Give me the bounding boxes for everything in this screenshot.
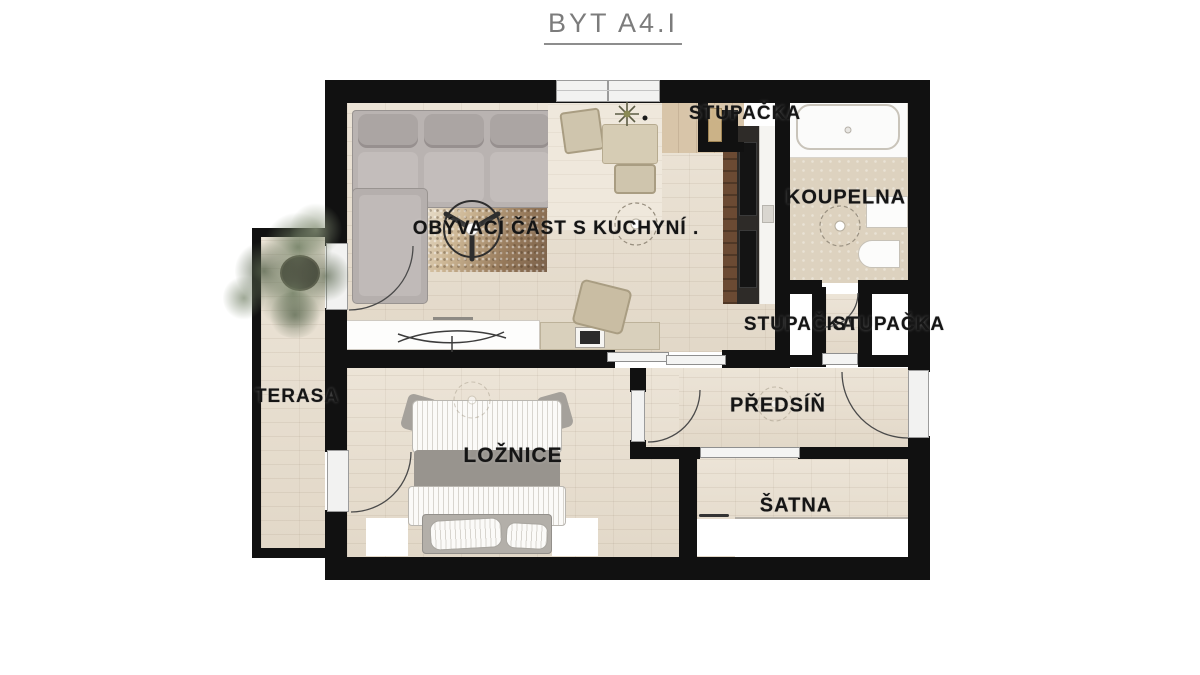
wall-bottom bbox=[325, 557, 930, 580]
room-label-terrace: TERASA bbox=[255, 386, 339, 408]
oven-icon bbox=[739, 230, 757, 288]
sideboard-decor-bar bbox=[433, 317, 473, 320]
entry-door bbox=[908, 370, 929, 438]
terrace-plant bbox=[235, 200, 355, 340]
room-label-bathroom: KOUPELNA bbox=[786, 187, 906, 210]
wall-right bbox=[908, 436, 930, 580]
dining-table bbox=[602, 124, 658, 164]
wall-living-bottom bbox=[347, 350, 615, 368]
wall-bathroom-bottom bbox=[858, 280, 908, 294]
fridge-icon bbox=[739, 142, 757, 216]
wall-left bbox=[325, 510, 347, 580]
window-glass-line bbox=[557, 90, 659, 91]
sofa-seat-cushion bbox=[490, 152, 550, 202]
wall-hall-bottom bbox=[798, 447, 908, 459]
sofa-back-cushion bbox=[424, 114, 484, 148]
window-top bbox=[556, 80, 660, 102]
bedroom-door bbox=[631, 390, 645, 442]
sliding-door-closet bbox=[700, 447, 800, 458]
plant-foliage bbox=[290, 202, 342, 257]
pillow bbox=[429, 517, 502, 551]
plant-foliage bbox=[223, 275, 265, 321]
hanging-rail-icon bbox=[699, 514, 729, 517]
wall-closet-left bbox=[679, 457, 697, 557]
pillow bbox=[505, 522, 548, 550]
toilet bbox=[858, 240, 900, 268]
monitor-screen bbox=[580, 331, 600, 344]
room-label-living: OBÝVACÍ ČÁST S KUCHYNÍ . bbox=[413, 218, 700, 240]
bathtub-inner bbox=[796, 104, 900, 150]
room-label-hall: PŘEDSÍŇ bbox=[730, 395, 826, 418]
sofa-back-cushion bbox=[490, 114, 550, 148]
sink-icon bbox=[762, 205, 774, 223]
room-label-riser-top: STUPAČKA bbox=[689, 103, 801, 125]
room-label-bedroom: LOŽNICE bbox=[463, 444, 562, 468]
terrace-door-bedroom bbox=[327, 450, 349, 512]
bath-passage-threshold bbox=[822, 353, 858, 365]
bedside-mat bbox=[366, 518, 408, 556]
page-title: BYT A4.I bbox=[544, 8, 682, 45]
sliding-door-living-hall bbox=[666, 355, 726, 365]
sideboard bbox=[343, 320, 540, 350]
dining-chair bbox=[614, 164, 656, 194]
dining-chair bbox=[559, 107, 604, 154]
terrace-wall-bottom bbox=[252, 548, 330, 558]
floor-plan: BYT A4.I OBÝVACÍ ČÁST S KUCHYNÍ . KOUPEL… bbox=[0, 0, 1200, 675]
wardrobe bbox=[735, 517, 908, 559]
wall-bedroom-divider bbox=[630, 368, 646, 392]
window-mullion bbox=[607, 81, 609, 101]
kitchen-cabinet-row bbox=[723, 126, 737, 304]
sofa-chaise-cushion bbox=[359, 195, 421, 296]
wall-hall-top bbox=[790, 355, 822, 367]
sliding-door-living-hall bbox=[607, 352, 669, 362]
room-label-closet: ŠATNA bbox=[760, 495, 832, 518]
wardrobe-unit bbox=[697, 519, 735, 556]
wall-hall-top bbox=[858, 355, 908, 367]
sofa-seat-cushion bbox=[424, 152, 484, 202]
room-label-riser-right: STUPAČKA bbox=[833, 314, 945, 336]
plant-foliage bbox=[267, 292, 323, 338]
bed bbox=[404, 388, 570, 554]
sofa-back-cushion bbox=[358, 114, 418, 148]
